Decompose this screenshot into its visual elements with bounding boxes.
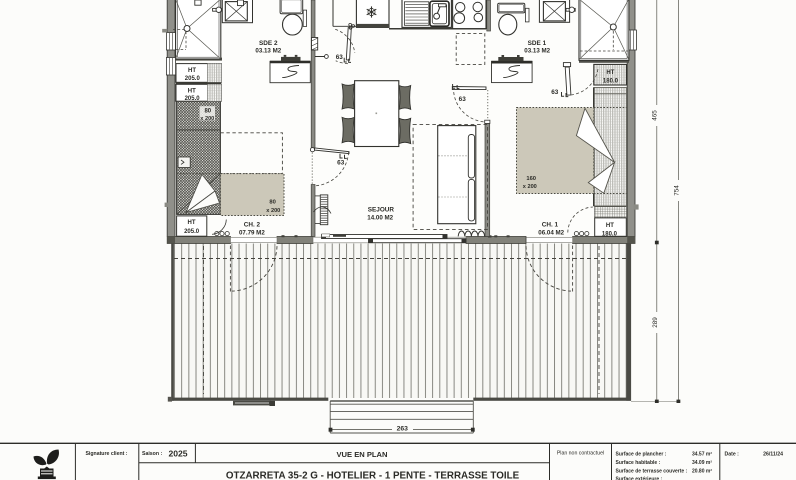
svg-text:160: 160 (526, 176, 536, 182)
svg-text:Surface extérieure :: Surface extérieure : (616, 477, 663, 480)
svg-text:HT: HT (606, 223, 614, 229)
svg-text:SDE 1: SDE 1 (528, 40, 547, 47)
svg-text:289: 289 (652, 317, 659, 328)
svg-text:205.0: 205.0 (184, 229, 200, 235)
svg-text:20.80 m²: 20.80 m² (692, 468, 712, 474)
svg-text:Date :: Date : (725, 451, 740, 457)
svg-text:VUE EN PLAN: VUE EN PLAN (336, 450, 387, 459)
svg-text:Plan non contractuel: Plan non contractuel (557, 450, 604, 456)
svg-text:34.09 m²: 34.09 m² (692, 460, 712, 466)
svg-text:Surface habitable :: Surface habitable : (616, 460, 661, 466)
svg-text:26/11/24: 26/11/24 (763, 451, 783, 457)
svg-text:63: 63 (551, 89, 559, 96)
svg-text:465: 465 (652, 110, 659, 121)
svg-text:205.0: 205.0 (185, 76, 201, 82)
svg-text:x 200: x 200 (200, 116, 214, 122)
svg-text:Surface de terrasse couverte :: Surface de terrasse couverte : (616, 468, 688, 474)
svg-text:03.13 M2: 03.13 M2 (524, 48, 550, 55)
svg-text:HT: HT (188, 220, 196, 226)
svg-text:14.00 M2: 14.00 M2 (367, 215, 393, 222)
svg-text:2025: 2025 (168, 448, 187, 458)
svg-text:x 200: x 200 (266, 208, 280, 214)
svg-text:63: 63 (337, 160, 345, 167)
svg-text:CH. 1: CH. 1 (542, 221, 559, 228)
svg-text:34.57 m²: 34.57 m² (692, 451, 712, 457)
svg-text:Saison :: Saison : (142, 451, 162, 457)
svg-text:Signature client :: Signature client : (85, 451, 127, 457)
svg-text:06.04 M2: 06.04 M2 (538, 230, 564, 237)
svg-text:205.0: 205.0 (185, 96, 201, 102)
svg-text:263: 263 (397, 425, 409, 432)
svg-text:180.0: 180.0 (603, 79, 619, 85)
svg-text:07.79 M2: 07.79 M2 (239, 229, 265, 236)
svg-text:SDE 2: SDE 2 (259, 40, 278, 47)
svg-text:180.0: 180.0 (602, 231, 618, 237)
svg-text:63: 63 (336, 54, 344, 61)
svg-text:HT: HT (188, 89, 196, 95)
svg-text:03.13 M2: 03.13 M2 (255, 48, 281, 55)
svg-text:754: 754 (674, 185, 681, 196)
svg-text:OTZARRETA 35-2 G - HOTELIER -: OTZARRETA 35-2 G - HOTELIER - 1 PENTE - … (226, 470, 520, 480)
svg-text:80: 80 (269, 200, 275, 206)
svg-text:80: 80 (204, 108, 211, 114)
svg-text:x 200: x 200 (523, 184, 537, 190)
svg-text:63: 63 (459, 96, 467, 103)
svg-text:HT: HT (606, 70, 614, 76)
svg-text:SEJOUR: SEJOUR (368, 207, 395, 214)
svg-text:HT: HT (188, 68, 196, 74)
svg-text:CH. 2: CH. 2 (244, 222, 261, 229)
svg-text:Surface de plancher :: Surface de plancher : (616, 451, 667, 457)
